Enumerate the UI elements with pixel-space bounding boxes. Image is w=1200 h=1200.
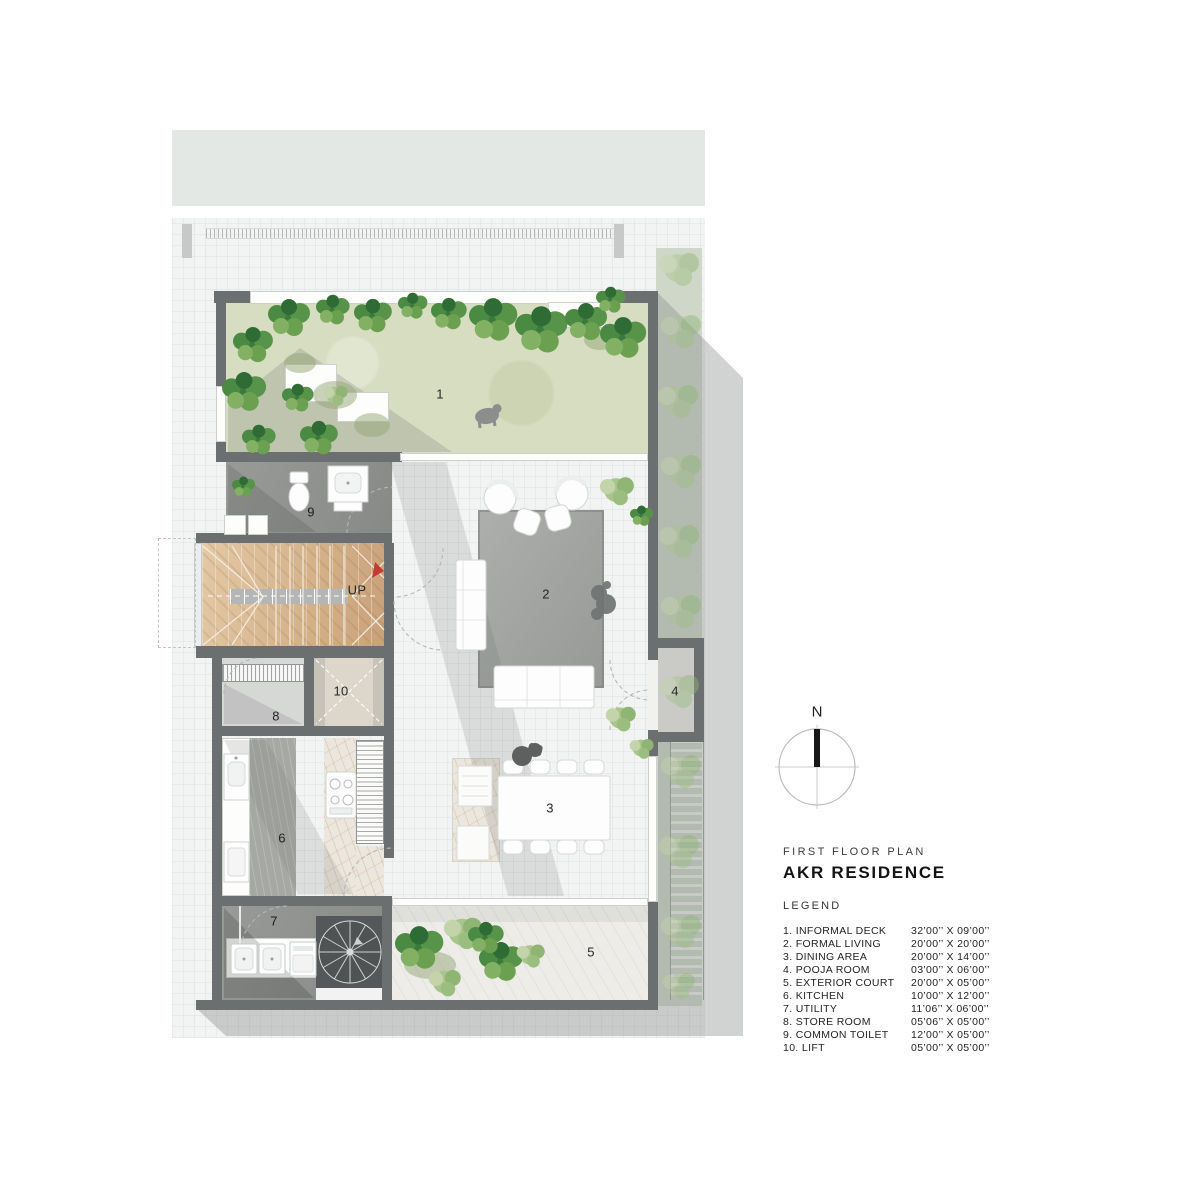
kitchen-counter-lower: [356, 846, 384, 896]
pooja-door-threshold: [648, 660, 658, 730]
legend-row: 5. EXTERIOR COURT20’00’’ X 05’00’’: [783, 977, 1005, 990]
wall-east-lower: [648, 902, 658, 1010]
stair-projection-dashed: [158, 538, 196, 648]
wall-pooja-east: [694, 638, 704, 742]
legend-list: 1. INFORMAL DECK32’00’’ X 09’00’’ 2. FOR…: [783, 925, 1005, 1055]
wall-kitchen-east: [384, 736, 394, 858]
kitchen-counter-left: [222, 738, 250, 896]
wall-stair-south: [196, 646, 394, 658]
wall-east-mid-stub1: [648, 648, 658, 660]
wall-lift-west: [304, 658, 314, 728]
title-block: FIRST FLOOR PLAN AKR RESIDENCE LEGEND 1.…: [783, 846, 1005, 1055]
deck-sliding-track: [400, 453, 648, 461]
kitchen-pantry-hatch: [356, 740, 384, 844]
toilet-bench-b: [248, 515, 268, 535]
wall-stair-east: [384, 543, 394, 658]
fence-post-left: [182, 224, 192, 258]
wall-lift-south: [304, 726, 394, 736]
legend-row: 4. POOJA ROOM03’00’’ X 06’00’’: [783, 964, 1005, 977]
room-floor-exterior-court: [392, 906, 648, 1000]
room-label-kitchen: 6: [278, 831, 286, 846]
wall-court-west: [382, 896, 392, 1010]
west-window: [216, 386, 226, 442]
deck-bench-a: [285, 364, 337, 402]
room-label-dining-area: 3: [546, 801, 554, 816]
wall-east-upper: [648, 291, 658, 638]
kitchen-island: [250, 738, 296, 896]
deck-parapet-step: [548, 302, 606, 328]
east-sliding-track: [648, 756, 657, 902]
neighbor-roof-band: [172, 130, 705, 206]
room-label-formal-living: 2: [542, 587, 550, 602]
pergola-rungs: [670, 740, 704, 1000]
room-label-informal-deck: 1: [436, 387, 444, 402]
legend-row: 3. DINING AREA20’00’’ X 14’00’’: [783, 951, 1005, 964]
legend-row: 10. LIFT05’00’’ X 05’00’’: [783, 1042, 1005, 1055]
wall-west-mid: [212, 656, 222, 1010]
lift-side-left: [314, 658, 325, 726]
project-name: AKR RESIDENCE: [783, 863, 1005, 883]
stair-landing-strip: [230, 589, 348, 604]
living-rug: [478, 510, 604, 688]
toilet-bench-a: [224, 515, 246, 535]
spiral-stair-box: [316, 916, 384, 988]
plan-title: FIRST FLOOR PLAN: [783, 846, 1005, 858]
floor-plan-sheet: 1 2 3 4 5 6 7 8 9 10 UP N FIRST FLOOR PL…: [0, 0, 1200, 1200]
legend-row: 6. KITCHEN10’00’’ X 12’00’’: [783, 990, 1005, 1003]
utility-counter: [226, 938, 316, 978]
legend-row: 9. COMMON TOILET12’00’’ X 05’00’’: [783, 1029, 1005, 1042]
court-sliding-track: [392, 898, 648, 906]
wall-pooja-south: [648, 732, 704, 742]
wall-store-south: [212, 726, 308, 736]
legend-title: LEGEND: [783, 900, 1005, 912]
wall-kitchen-utility: [212, 896, 392, 906]
fence-post-right: [614, 224, 624, 258]
room-label-pooja-room: 4: [671, 684, 679, 699]
north-arrow: [775, 725, 859, 809]
deck-bench-b: [337, 392, 389, 422]
stair-up-label: UP: [348, 583, 367, 598]
spiral-stair-ledge: [316, 988, 384, 1000]
lift-side-right: [373, 658, 384, 726]
wall-south: [196, 1000, 658, 1010]
legend-row: 1. INFORMAL DECK32’00’’ X 09’00’’: [783, 925, 1005, 938]
room-label-exterior-court: 5: [587, 945, 595, 960]
room-label-lift: 10: [333, 684, 348, 699]
kitchen-counter-right: [324, 738, 358, 896]
front-fence-hatch: [206, 228, 616, 239]
wall-deck-south: [216, 452, 402, 462]
room-label-store-room: 8: [272, 709, 280, 724]
legend-row: 2. FORMAL LIVING20’00’’ X 20’00’’: [783, 938, 1005, 951]
room-label-utility: 7: [270, 914, 278, 929]
north-label: N: [812, 704, 823, 721]
legend-row: 8. STORE ROOM05’06’’ X 05’00’’: [783, 1016, 1005, 1029]
room-label-common-toilet: 9: [307, 505, 315, 520]
dining-console: [452, 758, 500, 862]
legend-row: 7. UTILITY11’06’’ X 06’00’’: [783, 1003, 1005, 1016]
store-shelf-hatch: [222, 664, 306, 682]
